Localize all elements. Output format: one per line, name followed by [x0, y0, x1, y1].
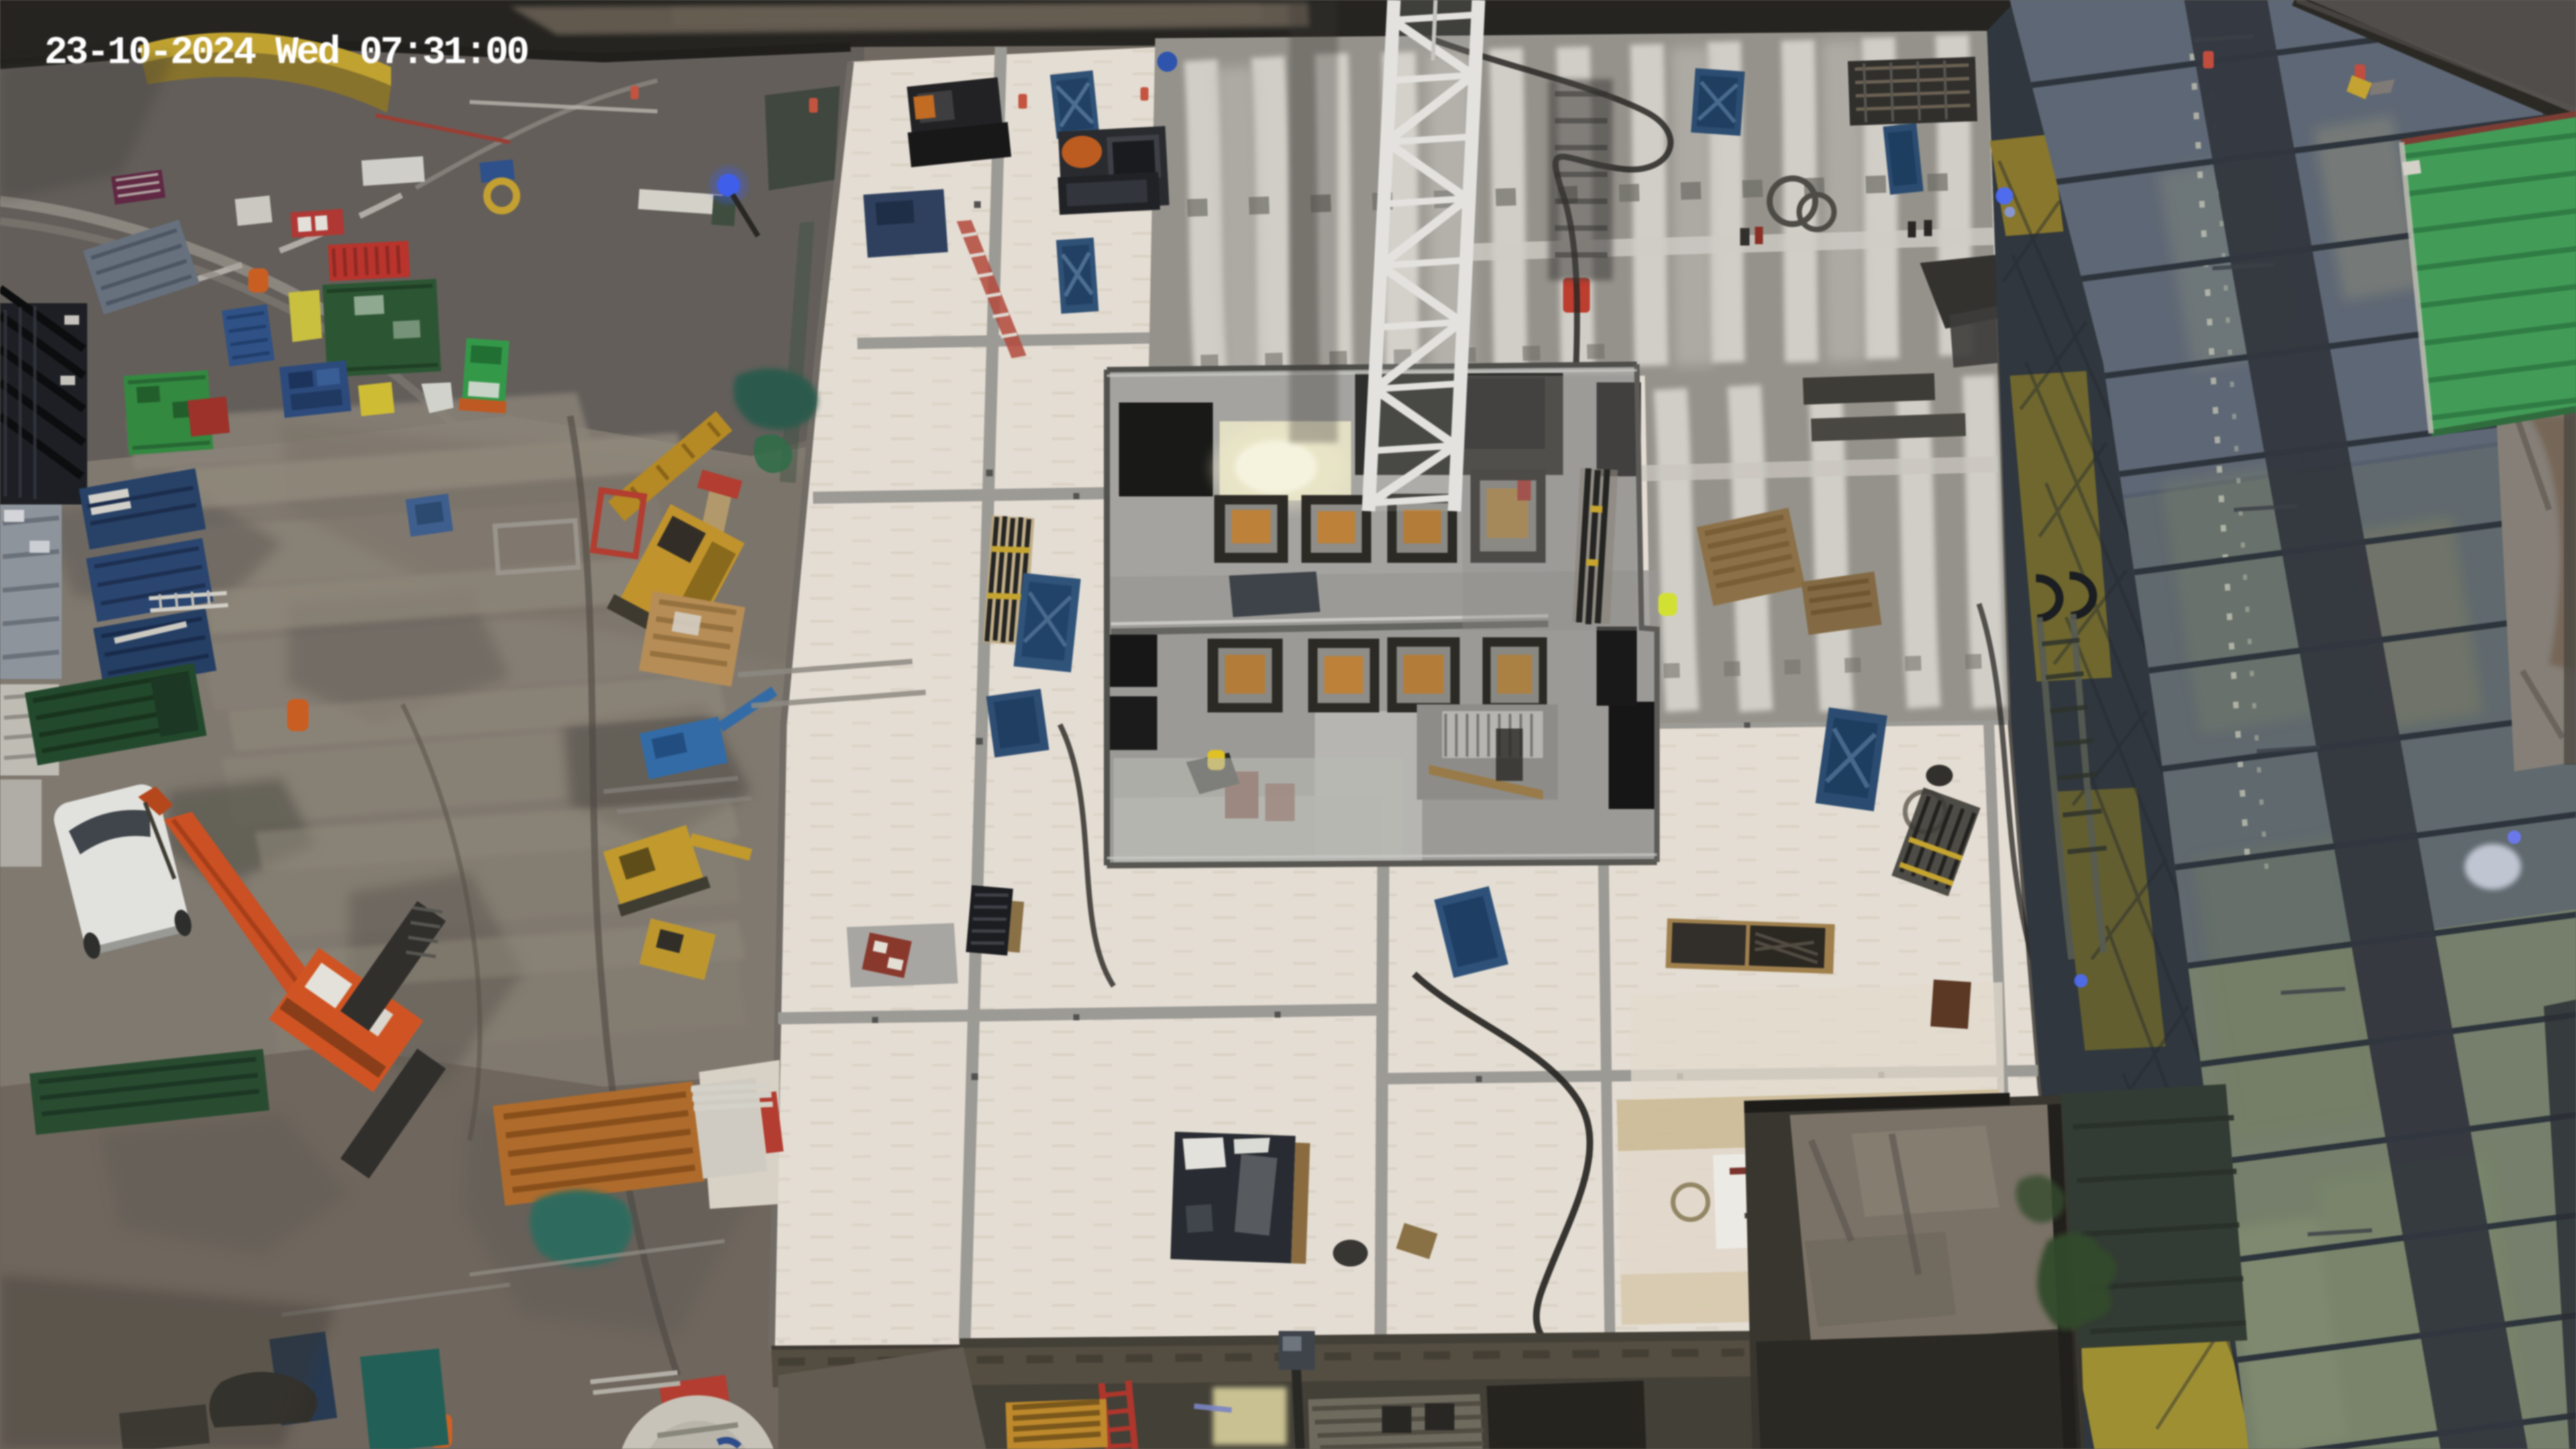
svg-text:23-10-2024 Wed 07:31:00: 23-10-2024 Wed 07:31:00	[44, 32, 528, 75]
